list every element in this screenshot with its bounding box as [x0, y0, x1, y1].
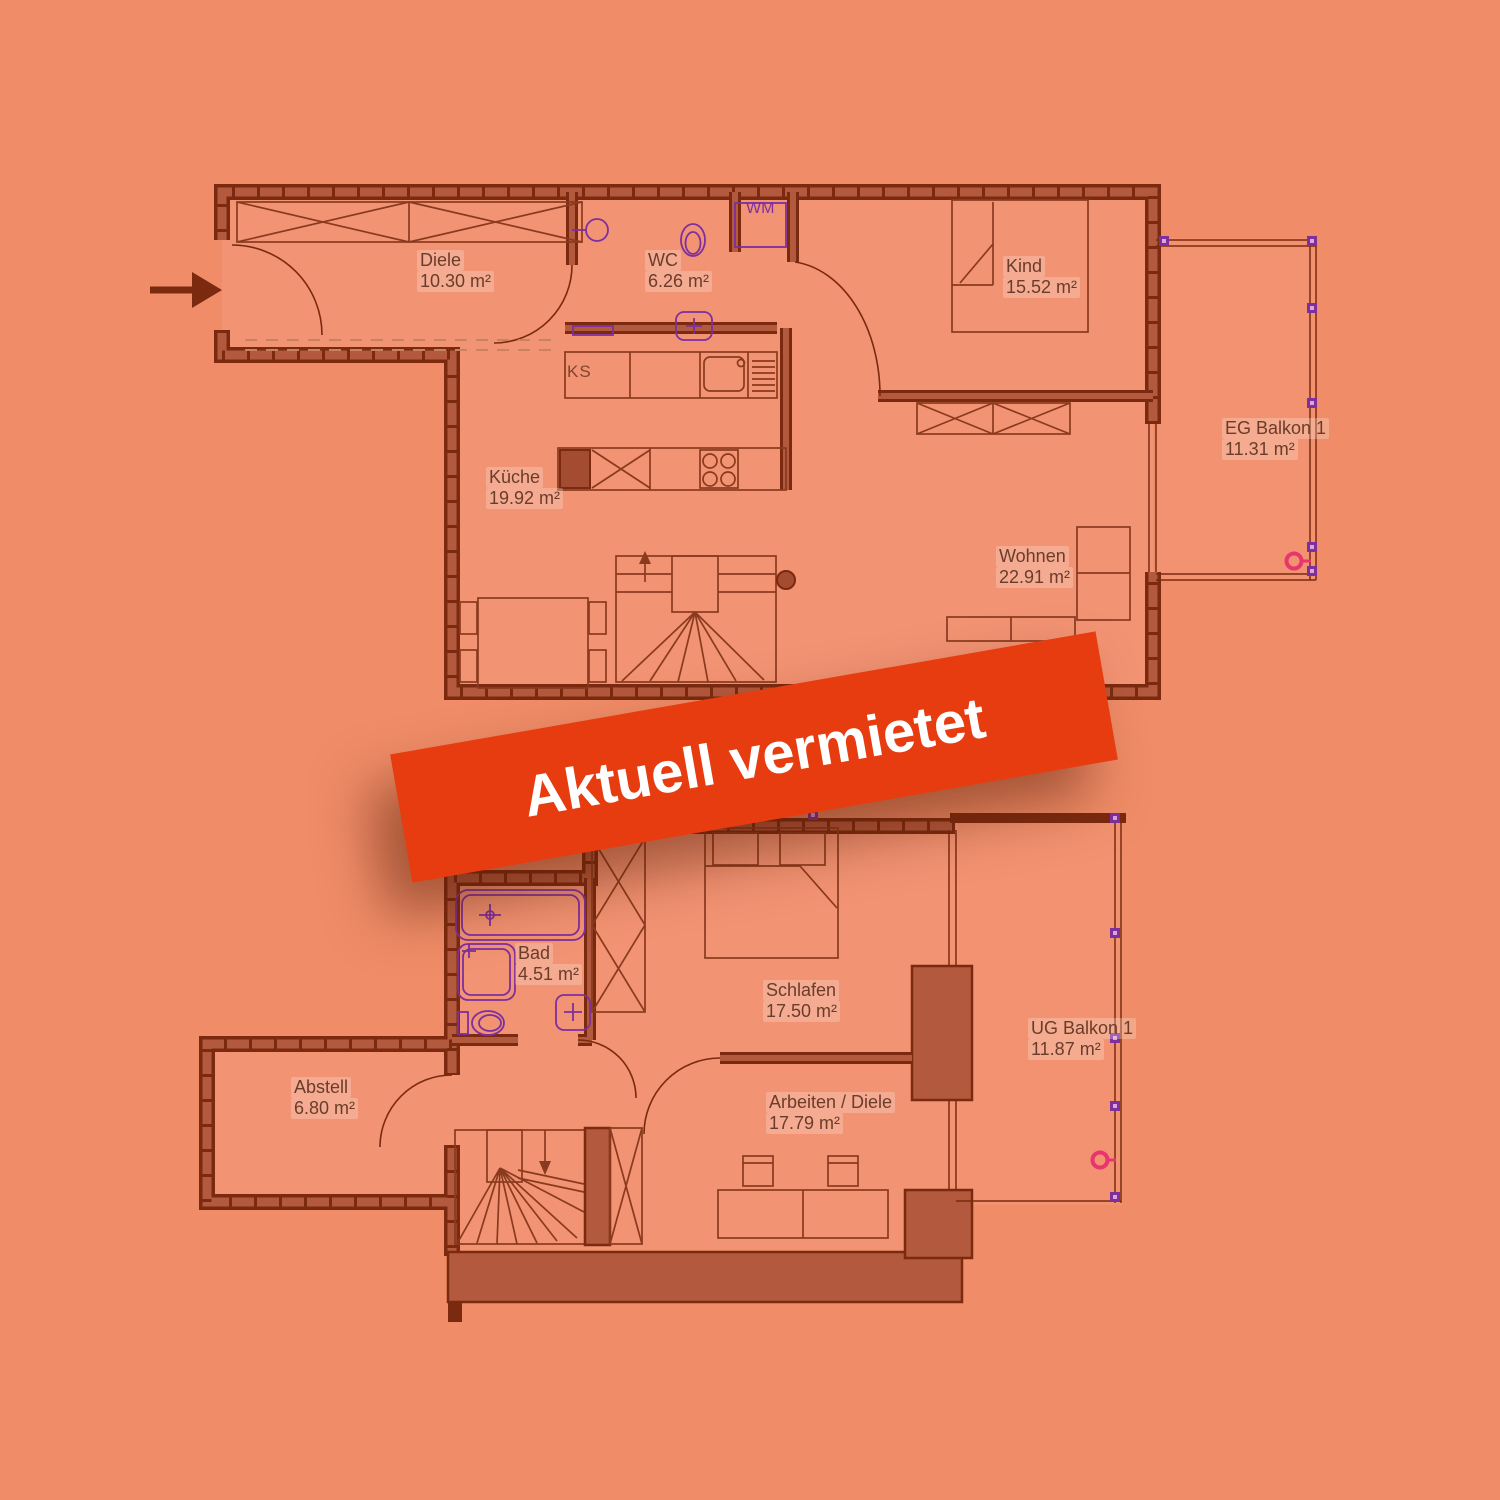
- fridge-label: KS: [567, 362, 592, 381]
- entrance-arrow-icon: [150, 272, 222, 308]
- room-label-arbeiten: Arbeiten / Diele17.79 m²: [766, 1092, 895, 1134]
- newel-post: [777, 571, 795, 589]
- room-label-wohnen: Wohnen22.91 m²: [996, 546, 1073, 588]
- eg-balcony-area: [1156, 238, 1316, 580]
- ug-balcony-area: [956, 818, 1122, 1205]
- bottom-wall-band: [448, 1252, 962, 1302]
- room-label-wc: WC6.26 m²: [645, 250, 712, 292]
- room-label-bad: Bad4.51 m²: [515, 943, 582, 985]
- room-label-kueche: Küche19.92 m²: [486, 467, 563, 509]
- room-label-ug-balkon: UG Balkon 111.87 m²: [1028, 1018, 1136, 1060]
- room-label-eg-balkon: EG Balkon 111.31 m²: [1222, 418, 1329, 460]
- washing-machine-label: WM: [746, 200, 774, 218]
- room-label-schlafen: Schlafen17.50 m²: [763, 980, 840, 1022]
- room-label-abstell: Abstell6.80 m²: [291, 1077, 358, 1119]
- room-label-kind: Kind15.52 m²: [1003, 256, 1080, 298]
- room-label-diele: Diele10.30 m²: [417, 250, 494, 292]
- floorplan-canvas: Diele10.30 m² WC6.26 m² Kind15.52 m² EG …: [0, 0, 1500, 1500]
